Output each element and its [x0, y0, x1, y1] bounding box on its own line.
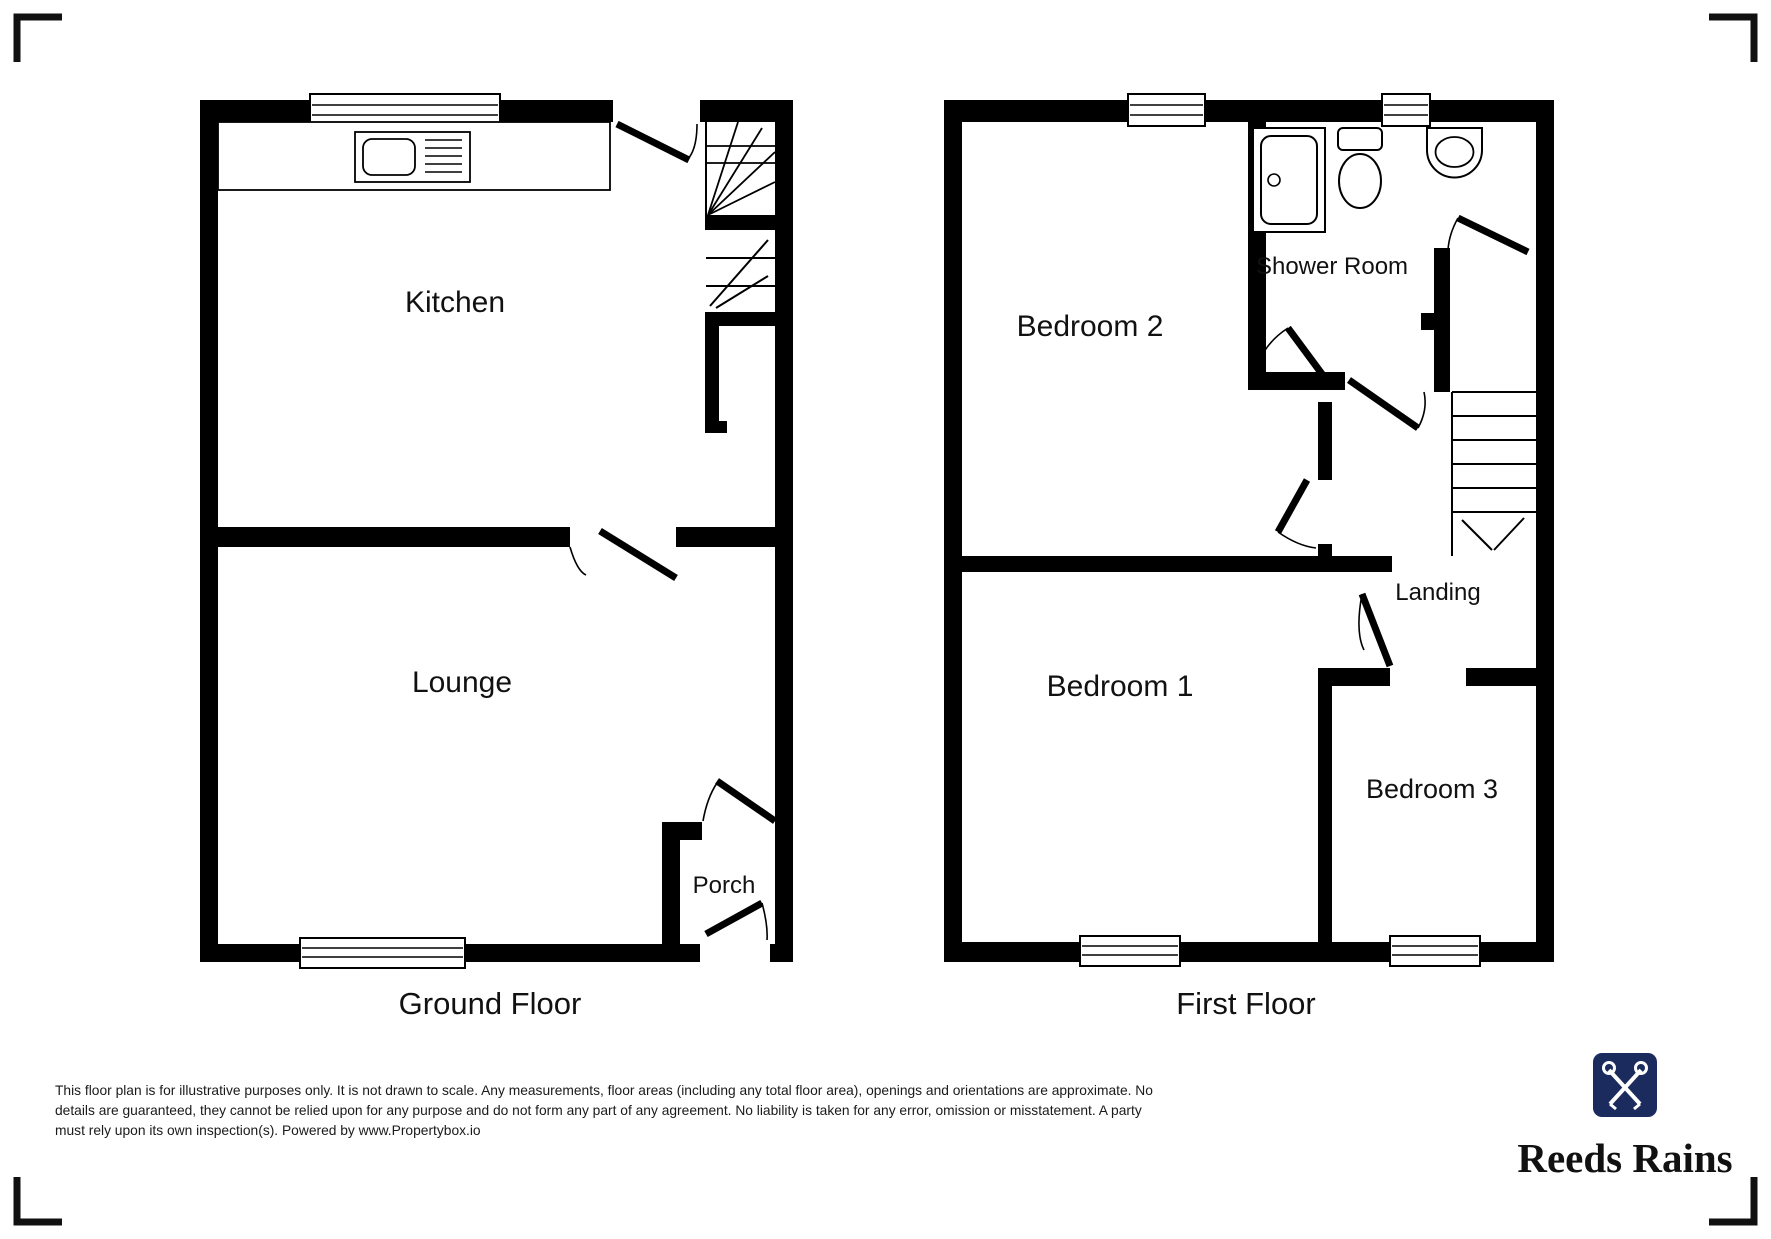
basin-icon	[1427, 128, 1482, 178]
wall	[218, 527, 775, 547]
toilet-icon	[1338, 128, 1382, 208]
bedroom2-label: Bedroom 2	[1017, 310, 1164, 343]
sink-icon	[355, 132, 470, 182]
stairs-icon	[705, 122, 775, 433]
corner-bracket-bottom-right	[1709, 1177, 1754, 1222]
porch-label: Porch	[693, 872, 756, 899]
bedroom3-label: Bedroom 3	[1366, 774, 1498, 804]
disclaimer-line-1: This floor plan is for illustrative purp…	[55, 1083, 1153, 1098]
logo-text: Reeds Rains	[1517, 1135, 1732, 1181]
floorplan-image: Kitchen Lounge Porch	[0, 0, 1771, 1239]
landing-label: Landing	[1395, 579, 1480, 606]
door-swing-icon	[1448, 218, 1528, 252]
shower-room-label: Shower Room	[1256, 253, 1408, 280]
door-swing-icon	[1278, 480, 1316, 548]
window-icon	[1390, 936, 1480, 966]
corner-bracket-top-right	[1709, 17, 1754, 62]
floorplan-page: Kitchen Lounge Porch	[0, 0, 1771, 1239]
door-swing-icon	[617, 124, 697, 160]
disclaimer-text: This floor plan is for illustrative purp…	[55, 1083, 1153, 1138]
first-floor-plan: Bedroom 2 Shower Room Landing Bedroom 1 …	[944, 94, 1554, 966]
window-icon	[1382, 94, 1430, 126]
window-icon	[300, 938, 465, 968]
reeds-rains-logo: Reeds Rains	[1517, 1053, 1732, 1181]
door-swing-icon	[703, 781, 775, 821]
stairs-icon	[1452, 392, 1536, 556]
crossed-keys-icon	[1593, 1053, 1657, 1117]
corner-bracket-bottom-left	[17, 1177, 62, 1222]
door-swing-icon	[1359, 594, 1390, 666]
door-swing-icon	[570, 531, 676, 578]
kitchen-label: Kitchen	[405, 286, 505, 319]
corner-bracket-top-left	[17, 17, 62, 62]
first-floor-caption: First Floor	[1176, 986, 1316, 1021]
disclaimer-line-2: details are guaranteed, they cannot be r…	[55, 1103, 1142, 1118]
ground-floor-plan: Kitchen Lounge Porch	[200, 94, 793, 968]
bedroom1-label: Bedroom 1	[1047, 670, 1194, 703]
door-swing-icon	[1349, 380, 1425, 428]
shower-tray-icon	[1253, 128, 1325, 232]
window-icon	[1128, 94, 1205, 126]
window-icon	[1080, 936, 1180, 966]
door-swing-icon	[706, 903, 767, 940]
ground-floor-caption: Ground Floor	[399, 986, 582, 1021]
wall	[962, 122, 1536, 942]
disclaimer-line-3: must rely upon its own inspection(s). Po…	[55, 1123, 481, 1138]
lounge-label: Lounge	[412, 666, 512, 699]
